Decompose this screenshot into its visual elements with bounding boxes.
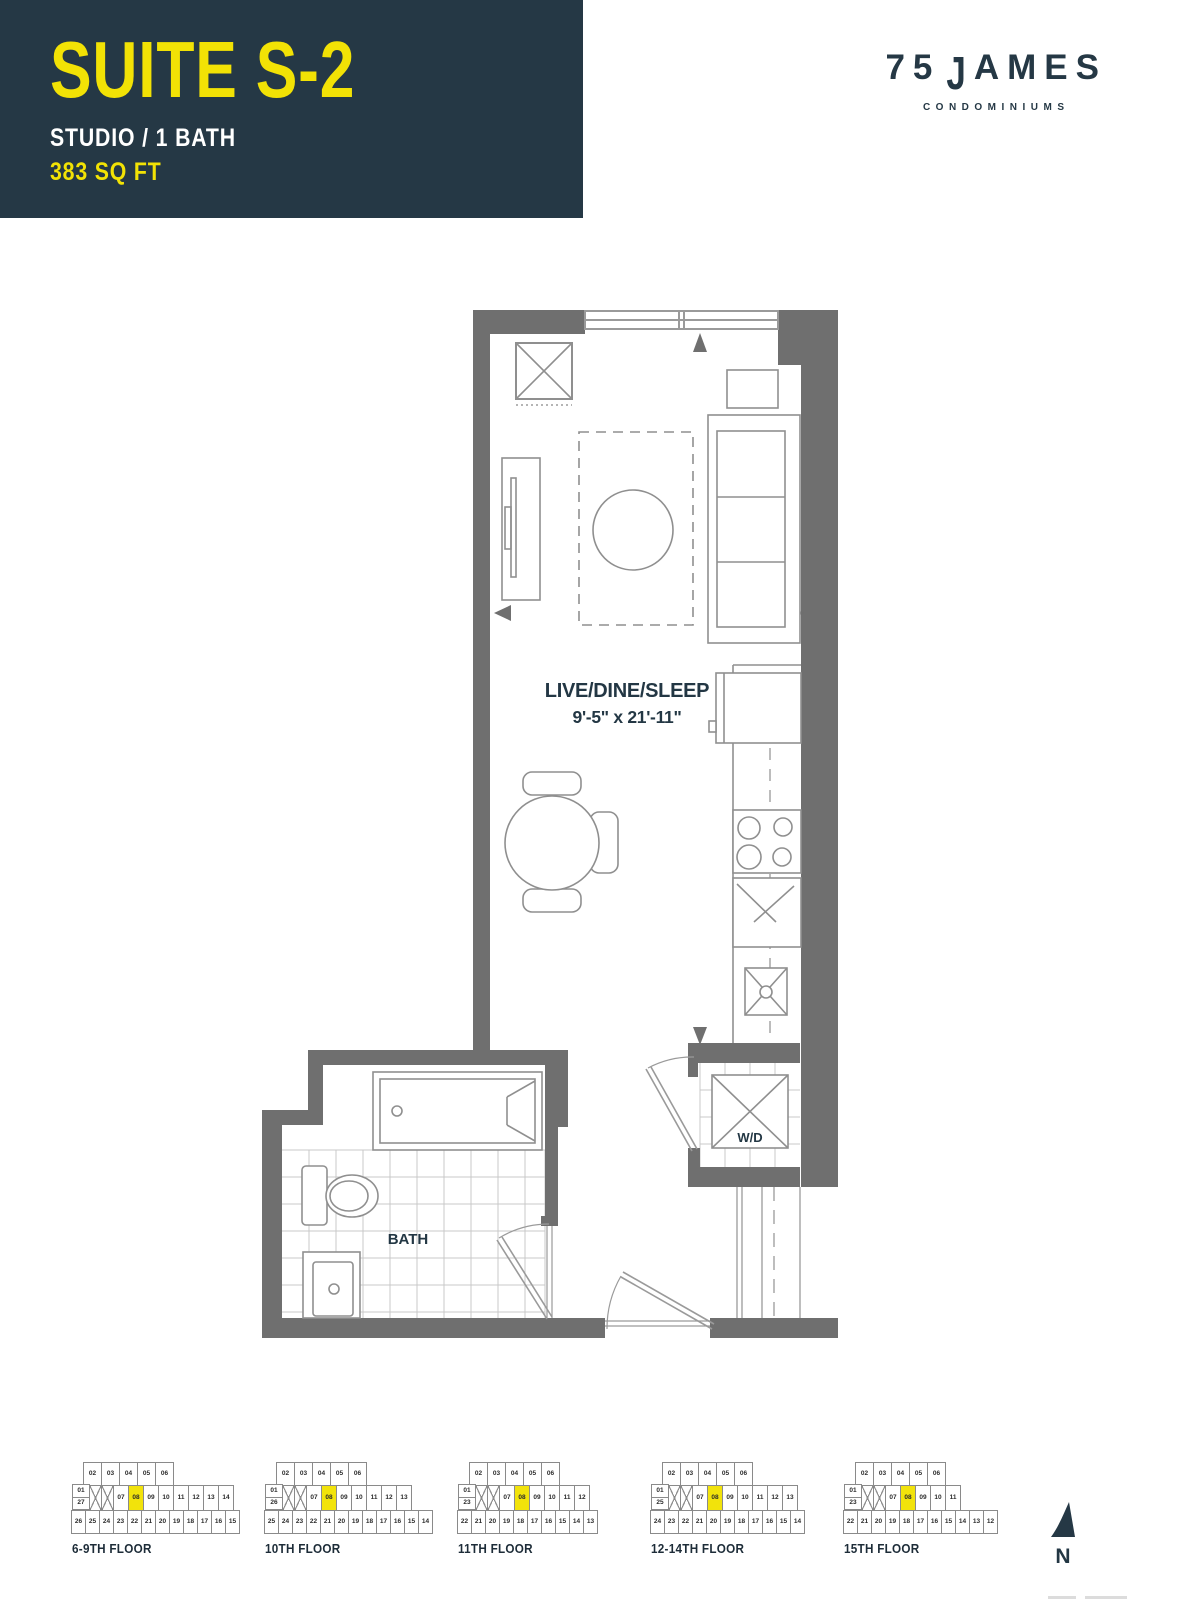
keyplan-unit-cell: 01 bbox=[72, 1484, 90, 1498]
keyplan-unit-cell: 20 bbox=[155, 1510, 170, 1534]
keyplan-unit-cell: 25 bbox=[85, 1510, 100, 1534]
keyplan-unit-cell: 16 bbox=[541, 1510, 556, 1534]
keyplan-unit-cell: 06 bbox=[348, 1462, 367, 1486]
keyplan-unit-cell: 05 bbox=[716, 1462, 735, 1486]
fridge bbox=[716, 673, 801, 743]
keyplan-unit-cell: 01 bbox=[458, 1484, 476, 1498]
keyplan-floor-label: 15TH FLOOR bbox=[844, 1541, 1002, 1556]
keyplan-unit-cell: 01 bbox=[844, 1484, 862, 1498]
window bbox=[585, 311, 778, 329]
keyplan-unit-cell: 10 bbox=[737, 1485, 753, 1511]
keyplan-unit-cell: 10 bbox=[351, 1485, 367, 1511]
keyplan-unit-cell: 02 bbox=[83, 1462, 102, 1486]
corridor bbox=[737, 1187, 800, 1318]
keyplan-unit-cell: 19 bbox=[348, 1510, 363, 1534]
wd-label: W/D bbox=[737, 1130, 762, 1145]
keyplan-unit-cell: 27 bbox=[72, 1497, 90, 1511]
keyplan-unit-cell: 07 bbox=[885, 1485, 901, 1511]
keyplan-unit-cell: 05 bbox=[523, 1462, 542, 1486]
keyplan-unit-cell: 22 bbox=[457, 1510, 472, 1534]
keyplan-unit-cell: 15 bbox=[776, 1510, 791, 1534]
keyplan-unit-highlight: 08 bbox=[707, 1485, 723, 1511]
keyplan-unit-cell: 16 bbox=[211, 1510, 226, 1534]
keyplan-unit-cell: 02 bbox=[469, 1462, 488, 1486]
keyplan-unit-cell: 09 bbox=[143, 1485, 159, 1511]
keyplan-unit-cell: 14 bbox=[569, 1510, 584, 1534]
keyplan-unit-cell: 03 bbox=[873, 1462, 892, 1486]
page-edge-artifact bbox=[1048, 1596, 1127, 1599]
keyplan-unit-cell: 06 bbox=[927, 1462, 946, 1486]
keyplan-unit-cell: 05 bbox=[137, 1462, 156, 1486]
keyplan-unit-cell: 20 bbox=[706, 1510, 721, 1534]
keyplan-unit-cell: 07 bbox=[306, 1485, 322, 1511]
keyplan-unit-cell: 13 bbox=[782, 1485, 798, 1511]
keyplan-unit-cell: 11 bbox=[366, 1485, 382, 1511]
keyplan-unit-cell: 17 bbox=[527, 1510, 542, 1534]
keyplan-strip: 0203040506012707080910111213142625242322… bbox=[72, 1462, 1072, 1556]
keyplan-floor-label: 10TH FLOOR bbox=[265, 1541, 423, 1556]
keyplan-unit-cell: 09 bbox=[722, 1485, 738, 1511]
keyplan-unit-cell: 02 bbox=[276, 1462, 295, 1486]
column bbox=[516, 343, 572, 405]
keyplan-unit-cell: 21 bbox=[692, 1510, 707, 1534]
keyplan-unit-cell: 06 bbox=[734, 1462, 753, 1486]
keyplan-unit-cell: 18 bbox=[362, 1510, 377, 1534]
keyplan-unit-cell: 04 bbox=[312, 1462, 331, 1486]
keyplan-unit-cell: 21 bbox=[471, 1510, 486, 1534]
keyplan-unit-highlight: 08 bbox=[514, 1485, 530, 1511]
keyplan-unit-highlight: 08 bbox=[128, 1485, 144, 1511]
keyplan-unit-cell: 13 bbox=[969, 1510, 984, 1534]
keyplan-unit-cell: 24 bbox=[650, 1510, 665, 1534]
keyplan-unit-cell: 03 bbox=[294, 1462, 313, 1486]
room-label: LIVE/DINE/SLEEP bbox=[545, 680, 709, 702]
keyplan-unit-cell: 18 bbox=[734, 1510, 749, 1534]
keyplan-unit-cell: 26 bbox=[71, 1510, 86, 1534]
keyplan-unit-cell: 24 bbox=[99, 1510, 114, 1534]
keyplan-unit-cell: 02 bbox=[662, 1462, 681, 1486]
keyplan-unit-cell: 19 bbox=[169, 1510, 184, 1534]
keyplan-unit-cell: 19 bbox=[499, 1510, 514, 1534]
keyplan-floor-label: 12-14TH FLOOR bbox=[651, 1541, 809, 1556]
keyplan-unit-cell: 23 bbox=[113, 1510, 128, 1534]
keyplan-unit-cell: 21 bbox=[141, 1510, 156, 1534]
keyplan-unit-cell: 03 bbox=[101, 1462, 120, 1486]
keyplan-unit-cell: 10 bbox=[158, 1485, 174, 1511]
keyplan-unit-cell: 15 bbox=[555, 1510, 570, 1534]
keyplan-unit-cell: 24 bbox=[278, 1510, 293, 1534]
keyplan-10th-floor: 0203040506012607080910111213252423222120… bbox=[265, 1462, 441, 1556]
keyplan-unit-highlight: 08 bbox=[321, 1485, 337, 1511]
keyplan-unit-cell: 22 bbox=[843, 1510, 858, 1534]
keyplan-unit-cell: 22 bbox=[127, 1510, 142, 1534]
keyplan-unit-cell: 16 bbox=[762, 1510, 777, 1534]
bathtub bbox=[373, 1072, 542, 1150]
keyplan-unit-cell: 02 bbox=[855, 1462, 874, 1486]
keyplan-unit-cell: 23 bbox=[664, 1510, 679, 1534]
keyplan-unit-cell: 13 bbox=[203, 1485, 219, 1511]
keyplan-unit-cell: 23 bbox=[292, 1510, 307, 1534]
keyplan-unit-cell: 09 bbox=[529, 1485, 545, 1511]
keyplan-unit-cell: 17 bbox=[197, 1510, 212, 1534]
keyplan-unit-cell: 20 bbox=[334, 1510, 349, 1534]
keyplan-unit-cell: 25 bbox=[264, 1510, 279, 1534]
keyplan-unit-cell: 10 bbox=[544, 1485, 560, 1511]
keyplan-unit-cell: 12 bbox=[381, 1485, 397, 1511]
keyplan-unit-cell: 13 bbox=[583, 1510, 598, 1534]
keyplan-unit-cell: 05 bbox=[330, 1462, 349, 1486]
keyplan-unit-cell: 07 bbox=[499, 1485, 515, 1511]
keyplan-unit-cell: 17 bbox=[913, 1510, 928, 1534]
keyplan-unit-cell: 15 bbox=[404, 1510, 419, 1534]
keyplan-floor-label: 6-9TH FLOOR bbox=[72, 1541, 230, 1556]
keyplan-unit-cell: 11 bbox=[752, 1485, 768, 1511]
keyplan-floor-label: 11TH FLOOR bbox=[458, 1541, 616, 1556]
keyplan-unit-cell: 01 bbox=[651, 1484, 669, 1498]
keyplan-unit-cell: 19 bbox=[885, 1510, 900, 1534]
keyplan-unit-cell: 06 bbox=[541, 1462, 560, 1486]
keyplan-unit-cell: 03 bbox=[680, 1462, 699, 1486]
keyplan-unit-cell: 11 bbox=[945, 1485, 961, 1511]
keyplan-unit-cell: 12 bbox=[574, 1485, 590, 1511]
keyplan-unit-cell: 23 bbox=[458, 1497, 476, 1511]
keyplan-unit-highlight: 08 bbox=[900, 1485, 916, 1511]
kitchen bbox=[709, 665, 801, 1043]
keyplan-unit-cell: 10 bbox=[930, 1485, 946, 1511]
toilet-tank bbox=[302, 1166, 327, 1225]
keyplan-unit-cell: 15 bbox=[941, 1510, 956, 1534]
keyplan-12-14th-floor: 0203040506012507080910111213242322212019… bbox=[651, 1462, 827, 1556]
bath-label: BATH bbox=[388, 1231, 429, 1248]
keyplan-unit-cell: 19 bbox=[720, 1510, 735, 1534]
keyplan-unit-cell: 01 bbox=[265, 1484, 283, 1498]
keyplan-unit-cell: 06 bbox=[155, 1462, 174, 1486]
keyplan-unit-cell: 18 bbox=[899, 1510, 914, 1534]
keyplan-unit-cell: 12 bbox=[767, 1485, 783, 1511]
keyplan-unit-cell: 26 bbox=[265, 1497, 283, 1511]
keyplan-unit-cell: 12 bbox=[983, 1510, 998, 1534]
keyplan-15th-floor: 0203040506012307080910112221201918171615… bbox=[844, 1462, 1020, 1556]
keyplan-unit-cell: 09 bbox=[915, 1485, 931, 1511]
keyplan-unit-cell: 07 bbox=[113, 1485, 129, 1511]
keyplan-6-9th-floor: 0203040506012707080910111213142625242322… bbox=[72, 1462, 248, 1556]
keyplan-unit-cell: 22 bbox=[306, 1510, 321, 1534]
keyplan-unit-cell: 18 bbox=[513, 1510, 528, 1534]
keyplan-unit-cell: 18 bbox=[183, 1510, 198, 1534]
keyplan-unit-cell: 15 bbox=[225, 1510, 240, 1534]
keyplan-unit-cell: 04 bbox=[119, 1462, 138, 1486]
keyplan-unit-cell: 09 bbox=[336, 1485, 352, 1511]
keyplan-unit-cell: 04 bbox=[698, 1462, 717, 1486]
keyplan-unit-cell: 05 bbox=[909, 1462, 928, 1486]
keyplan-unit-cell: 22 bbox=[678, 1510, 693, 1534]
floor-plan: LIVE/DINE/SLEEP 9'-5" x 21'-11" BATH W/D… bbox=[0, 0, 1203, 1600]
keyplan-unit-cell: 14 bbox=[790, 1510, 805, 1534]
keyplan-unit-cell: 07 bbox=[692, 1485, 708, 1511]
keyplan-unit-cell: 23 bbox=[844, 1497, 862, 1511]
keyplan-unit-cell: 16 bbox=[927, 1510, 942, 1534]
keyplan-unit-cell: 20 bbox=[871, 1510, 886, 1534]
wd-door-swing bbox=[648, 1057, 694, 1068]
keyplan-unit-cell: 11 bbox=[559, 1485, 575, 1511]
keyplan-unit-cell: 13 bbox=[396, 1485, 412, 1511]
keyplan-11th-floor: 0203040506012307080910111222212019181716… bbox=[458, 1462, 634, 1556]
keyplan-unit-cell: 04 bbox=[505, 1462, 524, 1486]
keyplan-unit-cell: 03 bbox=[487, 1462, 506, 1486]
room-dimensions: 9'-5" x 21'-11" bbox=[573, 707, 682, 727]
keyplan-unit-cell: 14 bbox=[955, 1510, 970, 1534]
keyplan-unit-cell: 25 bbox=[651, 1497, 669, 1511]
keyplan-unit-cell: 17 bbox=[376, 1510, 391, 1534]
keyplan-unit-cell: 21 bbox=[320, 1510, 335, 1534]
keyplan-unit-cell: 21 bbox=[857, 1510, 872, 1534]
keyplan-unit-cell: 12 bbox=[188, 1485, 204, 1511]
keyplan-unit-cell: 11 bbox=[173, 1485, 189, 1511]
keyplan-unit-cell: 20 bbox=[485, 1510, 500, 1534]
keyplan-unit-cell: 04 bbox=[891, 1462, 910, 1486]
keyplan-unit-cell: 14 bbox=[218, 1485, 234, 1511]
bathroom bbox=[302, 1072, 542, 1318]
keyplan-unit-cell: 14 bbox=[418, 1510, 433, 1534]
keyplan-unit-cell: 16 bbox=[390, 1510, 405, 1534]
keyplan-unit-cell: 17 bbox=[748, 1510, 763, 1534]
